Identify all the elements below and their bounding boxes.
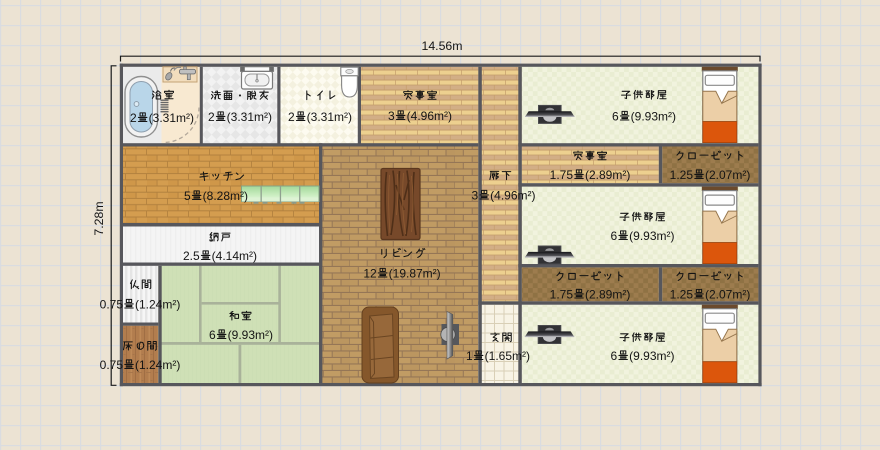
- svg-text:(3.31m²): (3.31m²): [307, 110, 352, 124]
- svg-text:(1.24m²): (1.24m²): [135, 298, 180, 312]
- svg-text:2.5: 2.5: [183, 249, 200, 263]
- svg-text:(9.93m²): (9.93m²): [629, 229, 674, 243]
- svg-text:3: 3: [472, 189, 479, 203]
- svg-text:6: 6: [611, 229, 618, 243]
- svg-text:6: 6: [209, 328, 216, 342]
- svg-text:6: 6: [611, 349, 618, 363]
- svg-text:(4.14m²): (4.14m²): [212, 249, 257, 263]
- svg-text:2: 2: [208, 110, 215, 124]
- svg-text:(9.93m²): (9.93m²): [629, 349, 674, 363]
- svg-text:2: 2: [130, 111, 137, 125]
- svg-text:(2.07m²): (2.07m²): [705, 168, 750, 182]
- svg-text:(1.65m²): (1.65m²): [485, 349, 530, 363]
- svg-text:1.25: 1.25: [670, 288, 694, 302]
- svg-text:0.75: 0.75: [100, 298, 124, 312]
- svg-text:1.25: 1.25: [670, 168, 694, 182]
- svg-text:(2.89m²): (2.89m²): [585, 288, 630, 302]
- svg-text:0.75: 0.75: [100, 358, 124, 372]
- svg-text:(3.31m²): (3.31m²): [149, 111, 194, 125]
- svg-text:(19.87m²): (19.87m²): [389, 267, 441, 281]
- svg-text:(3.31m²): (3.31m²): [227, 110, 272, 124]
- svg-text:7.28m: 7.28m: [92, 201, 106, 235]
- svg-text:12: 12: [363, 267, 377, 281]
- svg-text:(4.96m²): (4.96m²): [490, 189, 535, 203]
- svg-text:(4.96m²): (4.96m²): [407, 109, 452, 123]
- svg-text:(1.24m²): (1.24m²): [135, 358, 180, 372]
- svg-text:1: 1: [466, 349, 473, 363]
- svg-text:(2.89m²): (2.89m²): [585, 168, 630, 182]
- svg-text:1.75: 1.75: [550, 288, 574, 302]
- svg-text:5: 5: [184, 189, 191, 203]
- svg-text:(9.93m²): (9.93m²): [631, 110, 676, 124]
- svg-text:(8.28m²): (8.28m²): [203, 189, 248, 203]
- svg-text:(9.93m²): (9.93m²): [228, 328, 273, 342]
- svg-text:6: 6: [612, 110, 619, 124]
- svg-text:2: 2: [288, 110, 295, 124]
- svg-text:(2.07m²): (2.07m²): [705, 288, 750, 302]
- svg-text:1.75: 1.75: [550, 168, 574, 182]
- svg-text:3: 3: [388, 109, 395, 123]
- svg-text:14.56m: 14.56m: [421, 39, 462, 53]
